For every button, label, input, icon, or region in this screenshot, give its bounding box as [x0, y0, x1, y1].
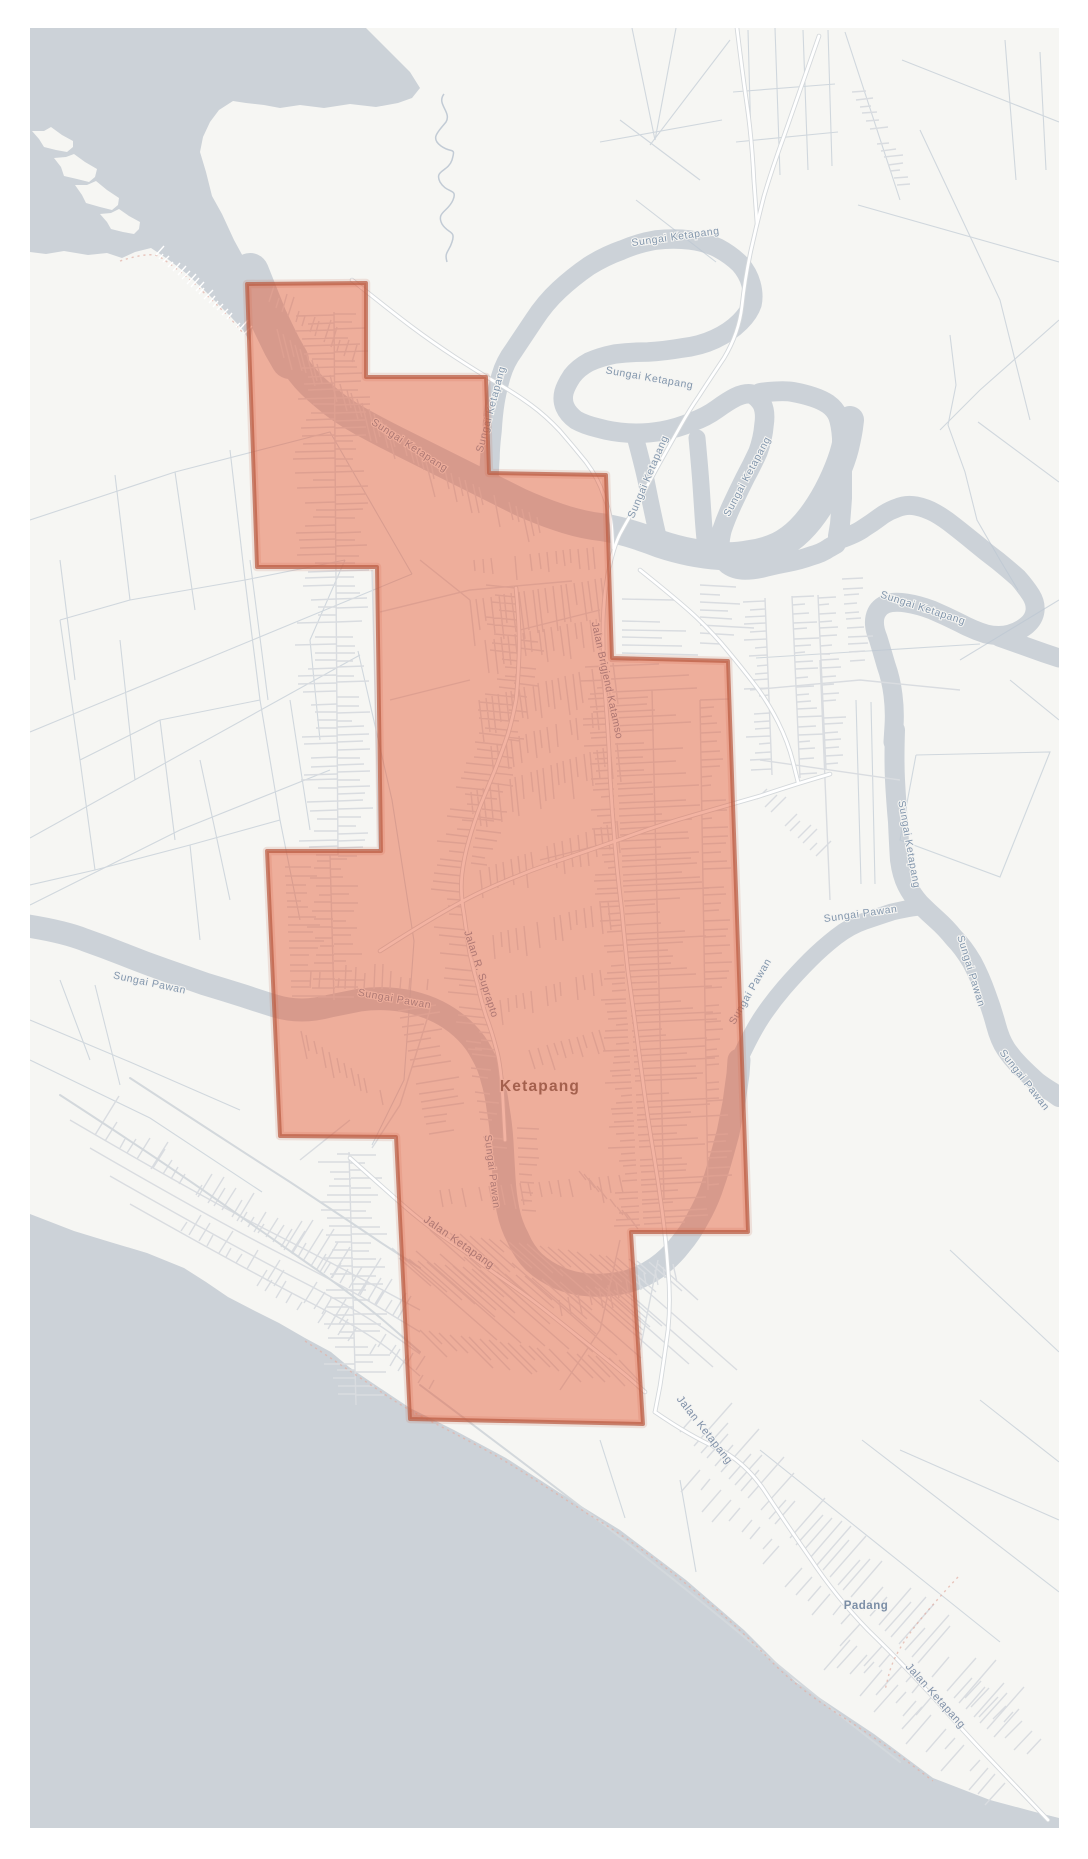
- svg-text:Padang: Padang: [844, 1600, 889, 1612]
